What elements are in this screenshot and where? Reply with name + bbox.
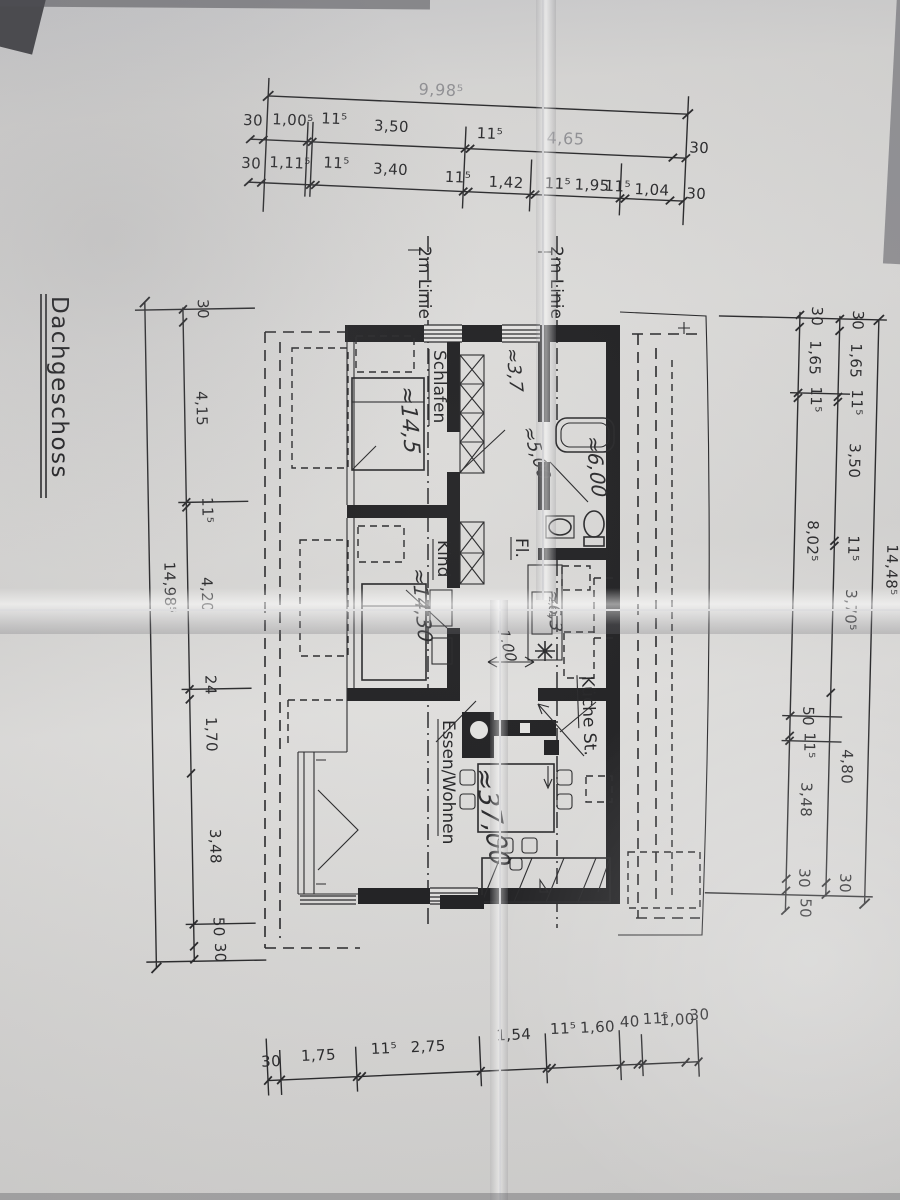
dim-label: 40 xyxy=(619,1012,640,1031)
dim-label: 30 xyxy=(689,1005,710,1024)
flur-depth: ≈5,00 xyxy=(517,425,555,481)
floor-plan-drawing: Dachgeschoss 9,98⁵ 30 1,00⁵ 11⁵ 3,50 11⁵… xyxy=(0,0,900,1200)
passage-dim: 1,00 xyxy=(488,628,534,667)
dim-label: 24 xyxy=(201,675,219,695)
dim-label: 30 xyxy=(808,306,826,326)
dim-label: 14,48⁵ xyxy=(882,544,900,596)
area-value: ≈37,00 xyxy=(467,768,516,866)
area-value: ≈14,30 xyxy=(407,568,438,643)
dim-label: 4,20 xyxy=(198,577,217,612)
dim-label: 1,54 xyxy=(496,1025,532,1045)
2m-line-label: 2m Linie xyxy=(546,246,566,319)
dim-label: 3,50 xyxy=(374,117,410,137)
room-label-kind: Kind xyxy=(433,539,453,580)
area-value: ≈14,5 xyxy=(394,386,425,455)
dim-label: 30 xyxy=(686,184,707,203)
dim-label: 11⁵ xyxy=(550,1019,577,1038)
dim-label: 11⁵ xyxy=(444,168,471,187)
room-name: Küche St. xyxy=(577,675,600,756)
dim-label: 50 xyxy=(796,898,814,918)
dim-label: 1,65 xyxy=(805,340,824,375)
dim-chain-top: 9,98⁵ 30 1,00⁵ 11⁵ 3,50 11⁵ 4,65 30 30 1… xyxy=(239,72,712,231)
dim-label: 11⁵ xyxy=(323,153,350,172)
flur-width: ≈3,7 xyxy=(501,348,527,393)
area-value: ≈6,3 xyxy=(543,590,565,633)
dim-label: 3,40 xyxy=(373,160,409,180)
dim-label: 30 xyxy=(849,310,867,330)
stairs xyxy=(300,858,610,909)
dim-label: 11⁵ xyxy=(807,386,826,413)
dim-label: 1,60 xyxy=(580,1017,616,1037)
roof-outline-left xyxy=(265,332,360,948)
area-bad: ≈6,00 xyxy=(581,436,612,498)
dim-label: 30 xyxy=(211,943,229,963)
title-text: Dachgeschoss xyxy=(46,296,72,479)
dim-label: 30 xyxy=(194,299,212,319)
dim-label: 11⁵ xyxy=(321,109,348,128)
roof-outline-right xyxy=(618,312,709,935)
dim-label: 50 xyxy=(799,706,817,726)
dim-label: 14,98⁵ xyxy=(160,561,179,613)
room-name: Fl. xyxy=(511,538,531,558)
dim-label: 11⁵ xyxy=(800,732,819,759)
dim-label: 30 xyxy=(261,1052,282,1071)
room-name: Essen/Wohnen xyxy=(438,720,458,844)
toilet xyxy=(584,511,604,546)
dim-chain-bottom: 30 1,75 11⁵ 2,75 1,54 11⁵ 1,60 40 11⁵ 1,… xyxy=(260,1005,713,1096)
dim-label: 11⁵ xyxy=(848,389,867,416)
2m-line-label: 2m Linie xyxy=(414,246,434,319)
dim-label: 11⁵ xyxy=(198,497,216,524)
passage-value: 1,00 xyxy=(494,628,521,662)
dim-label: 11⁵ xyxy=(844,535,863,562)
dim-label: 1,11⁵ xyxy=(269,153,311,173)
kitchen-counter xyxy=(462,712,559,758)
room-label-wohnen: Essen/Wohnen xyxy=(438,719,458,844)
area-value: ≈6,00 xyxy=(581,436,612,498)
dim-label: 3,48 xyxy=(797,782,816,817)
room-name: Schlafen xyxy=(429,350,449,423)
dim-label: 1,75 xyxy=(301,1046,337,1066)
dim-label: 8,02⁵ xyxy=(803,520,822,562)
room-label-flur: Fl. xyxy=(511,537,531,560)
dim-label: 30 xyxy=(795,868,813,888)
dim-label: 11⁵ xyxy=(544,174,571,193)
room-name: Kind xyxy=(433,540,453,577)
dim-label: 3,50 xyxy=(845,443,864,478)
area-kueche: ≈6,3 xyxy=(543,590,565,633)
dim-label: 30 xyxy=(241,154,262,173)
dim-chain-left: 14,98⁵ 30 4,15 11⁵ 4,20 24 1,70 3,48 50 … xyxy=(135,295,267,973)
dim-label: 30 xyxy=(836,873,854,893)
dim-label: 3,48 xyxy=(206,829,225,864)
dim-label: 11⁵ xyxy=(476,124,503,143)
closet-hatch xyxy=(460,355,484,584)
area-value: ≈3,7 xyxy=(501,348,527,393)
dim-chain-right: 30 1,65 11⁵ 8,02⁵ 50 11⁵ 3,48 30 50 30 1… xyxy=(704,304,900,920)
dim-label: 50 xyxy=(210,917,228,937)
dim-label: 30 xyxy=(243,111,264,130)
dim-label: 11⁵ xyxy=(370,1039,397,1058)
dim-label: 1,70 xyxy=(202,717,221,752)
dim-label: 9,98⁵ xyxy=(418,79,464,100)
dim-label: 2,75 xyxy=(410,1037,446,1057)
area-value: ≈5,00 xyxy=(517,425,555,481)
dim-label: 1,65 xyxy=(846,343,865,378)
dim-label: 1,00⁵ xyxy=(272,110,314,130)
area-schlafen: ≈14,5 xyxy=(394,386,425,455)
area-kind: ≈14,30 xyxy=(407,568,438,643)
sink xyxy=(546,516,574,538)
dim-label: 1,04 xyxy=(634,180,670,200)
dim-label: 11⁵ xyxy=(604,177,631,196)
dim-label: 4,15 xyxy=(192,391,211,426)
area-wohnen: ≈37,00 xyxy=(467,768,516,866)
dim-label: 1,42 xyxy=(488,173,524,193)
bay-window xyxy=(298,752,358,894)
dim-label: 4,65 xyxy=(546,128,585,149)
floor-plan-photo: Dachgeschoss 9,98⁵ 30 1,00⁵ 11⁵ 3,50 11⁵… xyxy=(0,0,900,1200)
dim-label: 4,80 xyxy=(838,749,857,784)
dim-label: 30 xyxy=(689,138,710,157)
page-title: Dachgeschoss xyxy=(41,294,72,498)
paper-edge-bottom xyxy=(0,1193,900,1200)
room-label-schlafen: Schlafen xyxy=(429,349,449,426)
